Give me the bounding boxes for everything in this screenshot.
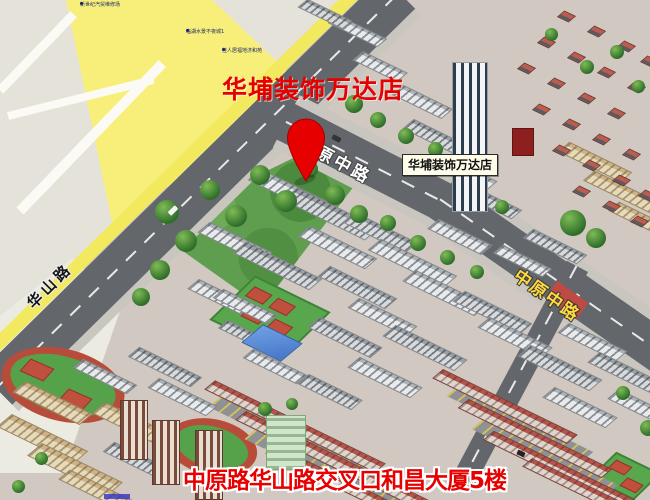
tree — [580, 60, 594, 74]
tree — [275, 190, 297, 212]
building — [307, 317, 382, 358]
tree — [560, 210, 586, 236]
building — [532, 103, 551, 115]
building — [587, 25, 606, 37]
location-pin-icon[interactable] — [286, 118, 326, 182]
building — [152, 420, 180, 485]
building — [597, 66, 616, 78]
tree — [632, 80, 645, 93]
tree — [325, 185, 345, 205]
building — [382, 325, 467, 371]
building — [542, 387, 617, 428]
tree — [35, 452, 48, 465]
tree — [150, 260, 170, 280]
map-canvas[interactable]: 新世纪汽贸维修场临湖水景不夜城1佳人居福地济和苑 华山路 原中路 中 — [0, 0, 650, 500]
building — [572, 185, 591, 197]
building — [607, 107, 626, 119]
tiny-poi-label — [104, 494, 130, 499]
building — [120, 400, 148, 460]
tree — [545, 28, 558, 41]
address-banner: 中原路华山路交叉口和昌大厦5楼 — [183, 461, 506, 495]
building — [622, 148, 641, 160]
tree — [495, 200, 509, 214]
building — [297, 374, 363, 410]
flat-map-poi-label: 临湖水景不夜城1 — [186, 29, 224, 35]
tree — [586, 228, 606, 248]
tree — [350, 205, 368, 223]
tree — [470, 265, 484, 279]
tree — [398, 128, 414, 144]
flat-map-poi-label: 新世纪汽贸维修场 — [80, 2, 120, 8]
building — [517, 62, 536, 74]
building — [512, 128, 534, 156]
tree — [250, 165, 270, 185]
tree — [225, 205, 247, 227]
tree — [616, 386, 630, 400]
building — [592, 133, 611, 145]
tree — [370, 112, 386, 128]
building — [562, 118, 581, 130]
building — [452, 62, 488, 212]
building — [547, 77, 566, 89]
tree — [610, 45, 624, 59]
building — [347, 357, 422, 398]
tree — [286, 398, 298, 410]
building — [577, 92, 596, 104]
tree — [380, 215, 396, 231]
tree — [132, 288, 150, 306]
tree — [200, 180, 220, 200]
tree — [440, 250, 455, 265]
poi-label-box[interactable]: 华埔装饰万达店 — [402, 154, 498, 176]
building — [557, 10, 576, 22]
store-title-overlay: 华埔装饰万达店 — [222, 70, 404, 106]
building — [640, 55, 650, 67]
tree — [410, 235, 426, 251]
tree — [12, 480, 25, 493]
flat-map-poi-label: 佳人居福地济和苑 — [222, 48, 262, 54]
tree — [258, 402, 272, 416]
tree — [640, 420, 650, 436]
tree — [175, 230, 197, 252]
